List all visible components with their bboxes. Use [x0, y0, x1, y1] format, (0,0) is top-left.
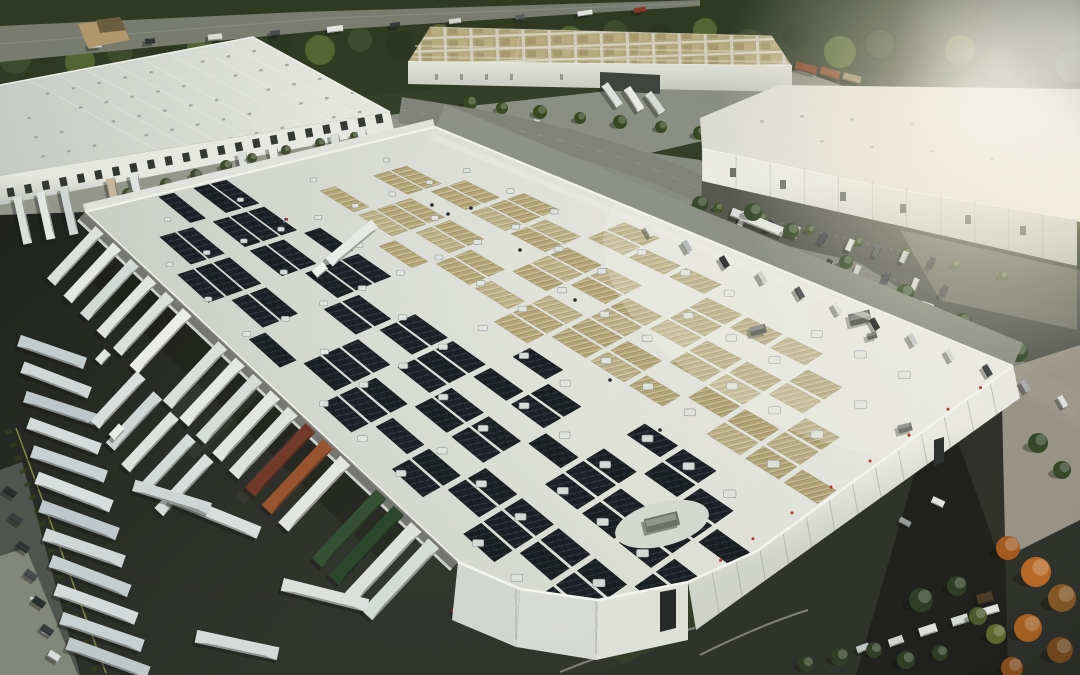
vignette	[0, 0, 1080, 675]
aerial-photo-warehouse-solar	[0, 0, 1080, 675]
lighting-effects	[0, 0, 1080, 675]
aerial-photo-stage	[0, 0, 1080, 675]
